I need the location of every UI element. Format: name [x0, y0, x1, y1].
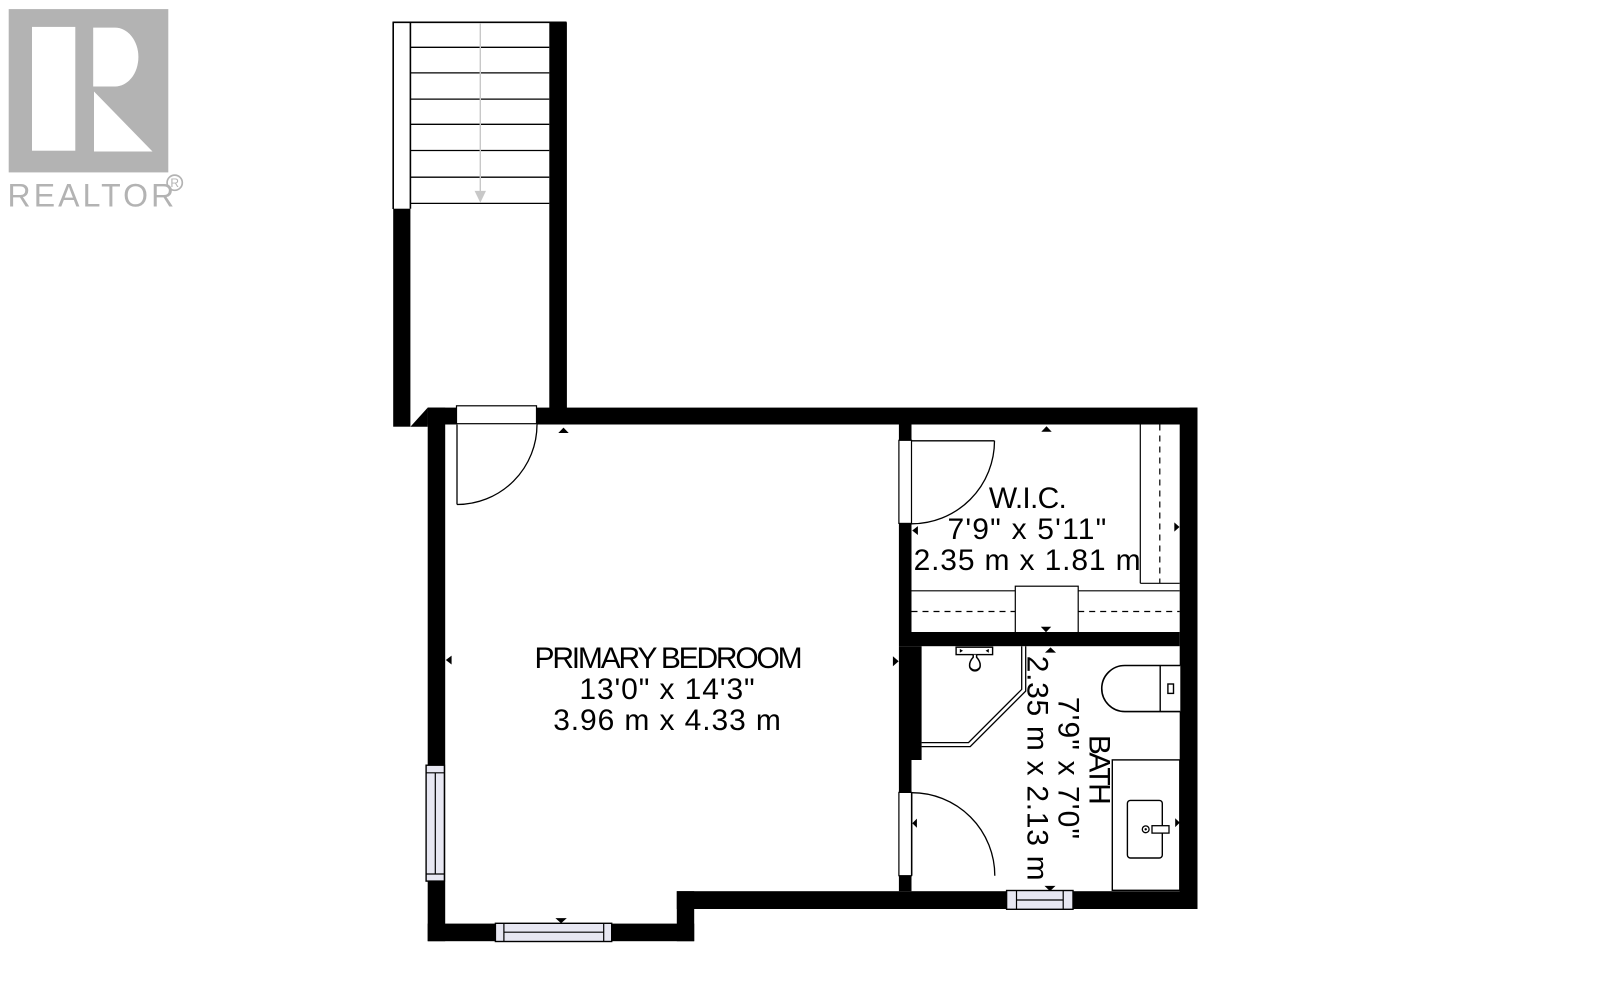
svg-text:3.96 m x 4.33 m: 3.96 m x 4.33 m: [553, 704, 782, 737]
svg-text:2.35 m x 1.81 m: 2.35 m x 1.81 m: [914, 544, 1142, 577]
svg-text:R: R: [170, 176, 179, 190]
svg-text:W.I.C.: W.I.C.: [989, 482, 1066, 515]
svg-text:PRIMARY BEDROOM: PRIMARY BEDROOM: [535, 642, 801, 675]
svg-text:7'9" x 7'0": 7'9" x 7'0": [1052, 697, 1085, 840]
svg-text:2.35 m x 2.13 m: 2.35 m x 2.13 m: [1021, 656, 1054, 882]
svg-text:REALTOR: REALTOR: [8, 178, 178, 214]
svg-text:13'0" x 14'3": 13'0" x 14'3": [579, 673, 755, 706]
svg-text:BATH: BATH: [1083, 735, 1116, 803]
svg-text:7'9" x 5'11": 7'9" x 5'11": [947, 513, 1107, 546]
